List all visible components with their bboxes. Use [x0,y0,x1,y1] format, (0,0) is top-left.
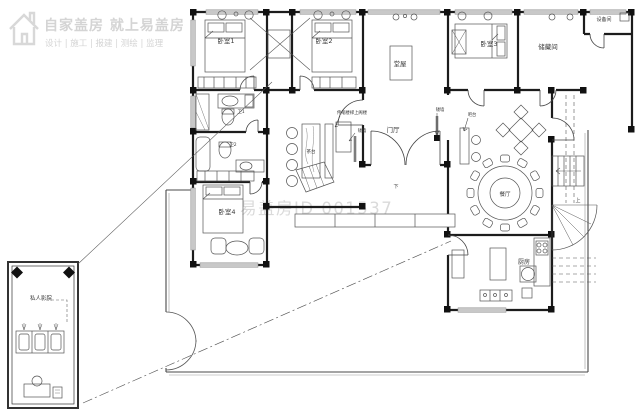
toilet-icon [222,109,234,125]
table-icon [226,241,248,255]
courtyard-gate [166,312,196,370]
vanity-icon [218,94,254,108]
sink-cabinet-icon [520,266,536,282]
speaker-icon [63,267,75,279]
room-labels: 卧室1 卧室2 堂屋 卧室3 储藏间 设备间 卫1 卫2 茶台 门厅 卧室4 餐… [30,16,612,302]
stair-down-label: 下 [393,184,398,190]
stair-up-label: 上 [575,197,580,204]
chair-icon [532,123,546,137]
dining-label: 餐厅 [499,190,511,198]
bedroom3-label: 卧室3 [480,39,497,48]
bar-stool-icon [472,153,481,162]
annotation-labels: 伸缩楼梯上阁楼 矮墙 矮墙 吧台 上 下 [337,106,581,204]
counter-icon [452,250,464,278]
bed-icon [205,20,245,72]
brand-subtitle: 设计 | 施工 | 报建 | 测绘 | 监理 [45,38,164,49]
sink-icon [240,162,252,170]
counter-icon [534,238,550,286]
bar-counter-label: 吧台 [468,111,477,118]
house-logo-icon [10,13,38,44]
recliner-seats [16,323,64,353]
tea-room-furniture [287,122,352,192]
equipment-label: 设备间 [596,16,611,23]
terrace-steps [295,214,455,227]
low-wall-left-label: 矮墙 [358,127,367,134]
sink-icon [522,268,535,281]
brand-title: 自家盖房 就上易盖房 [44,17,185,34]
windows [191,10,626,313]
cinema-label: 私人影院 [30,294,53,302]
stool-icon [287,176,298,187]
bar-area [460,128,481,164]
courtyard-walls [166,130,588,375]
stool-icon [287,144,298,155]
closet-icon [312,77,356,88]
cabinet-icon [336,122,351,152]
speaker-icon [11,267,23,279]
leisure-table [496,105,546,155]
plant-icon [22,323,26,330]
bedroom2-furniture [312,11,356,88]
stool-icon [287,128,298,139]
square-table-icon [509,118,533,142]
bedroom4-label: 卧室4 [218,207,235,216]
storage-label: 储藏间 [538,42,558,51]
tea-table-label: 茶台 [307,148,316,155]
floor-plan-canvas: 自家盖房 就上易盖房 设计 | 施工 | 报建 | 测绘 | 监理 易盖房ID … [0,0,640,412]
armchair-icon [211,238,226,254]
bedroom3-furniture [452,12,507,58]
appliance-icon [522,288,532,298]
chair-icon [514,105,528,119]
bath2-label: 卫2 [229,142,236,148]
sink-icon [222,96,238,106]
wardrobe-shaft-icon [250,18,310,70]
kitchen-label: 厨房 [518,258,530,266]
low-walls [355,116,437,162]
bar-stool-icon [472,136,481,145]
cinema-inset [8,262,78,408]
hall-furniture [390,14,417,80]
foyer-label: 门厅 [387,125,401,134]
storage-marks [549,14,573,20]
stool-icon [287,160,298,171]
cinema-equipment [24,376,62,398]
hall-label: 堂屋 [394,59,408,68]
bench-icon [325,124,333,178]
bedroom1-label: 卧室1 [217,36,234,45]
closet-icon [198,77,256,88]
bedroom1-furniture [198,11,256,88]
bed-icon [312,20,352,72]
low-wall-right-label: 矮墙 [436,106,445,113]
bedroom2-label: 卧室2 [315,36,332,45]
bath1-label: 卫1 [237,109,244,115]
chair-icon [496,123,510,137]
armchair-icon [249,238,264,254]
device-icon [53,387,62,398]
bar-counter-icon [460,128,469,164]
brand-watermark: 自家盖房 就上易盖房 设计 | 施工 | 报建 | 测绘 | 监理 [10,13,185,49]
island-icon [490,248,506,280]
closet-icon [197,171,254,181]
plant-icon [38,323,42,330]
ladder-note-label: 伸缩楼梯上阁楼 [337,109,368,116]
floor-plan-drawing: 自家盖房 就上易盖房 设计 | 施工 | 报建 | 测绘 | 监理 易盖房ID … [0,0,640,412]
chair-icon [32,376,42,386]
chair-icon [514,141,528,155]
plant-icon [54,323,58,330]
staircase [552,95,597,282]
